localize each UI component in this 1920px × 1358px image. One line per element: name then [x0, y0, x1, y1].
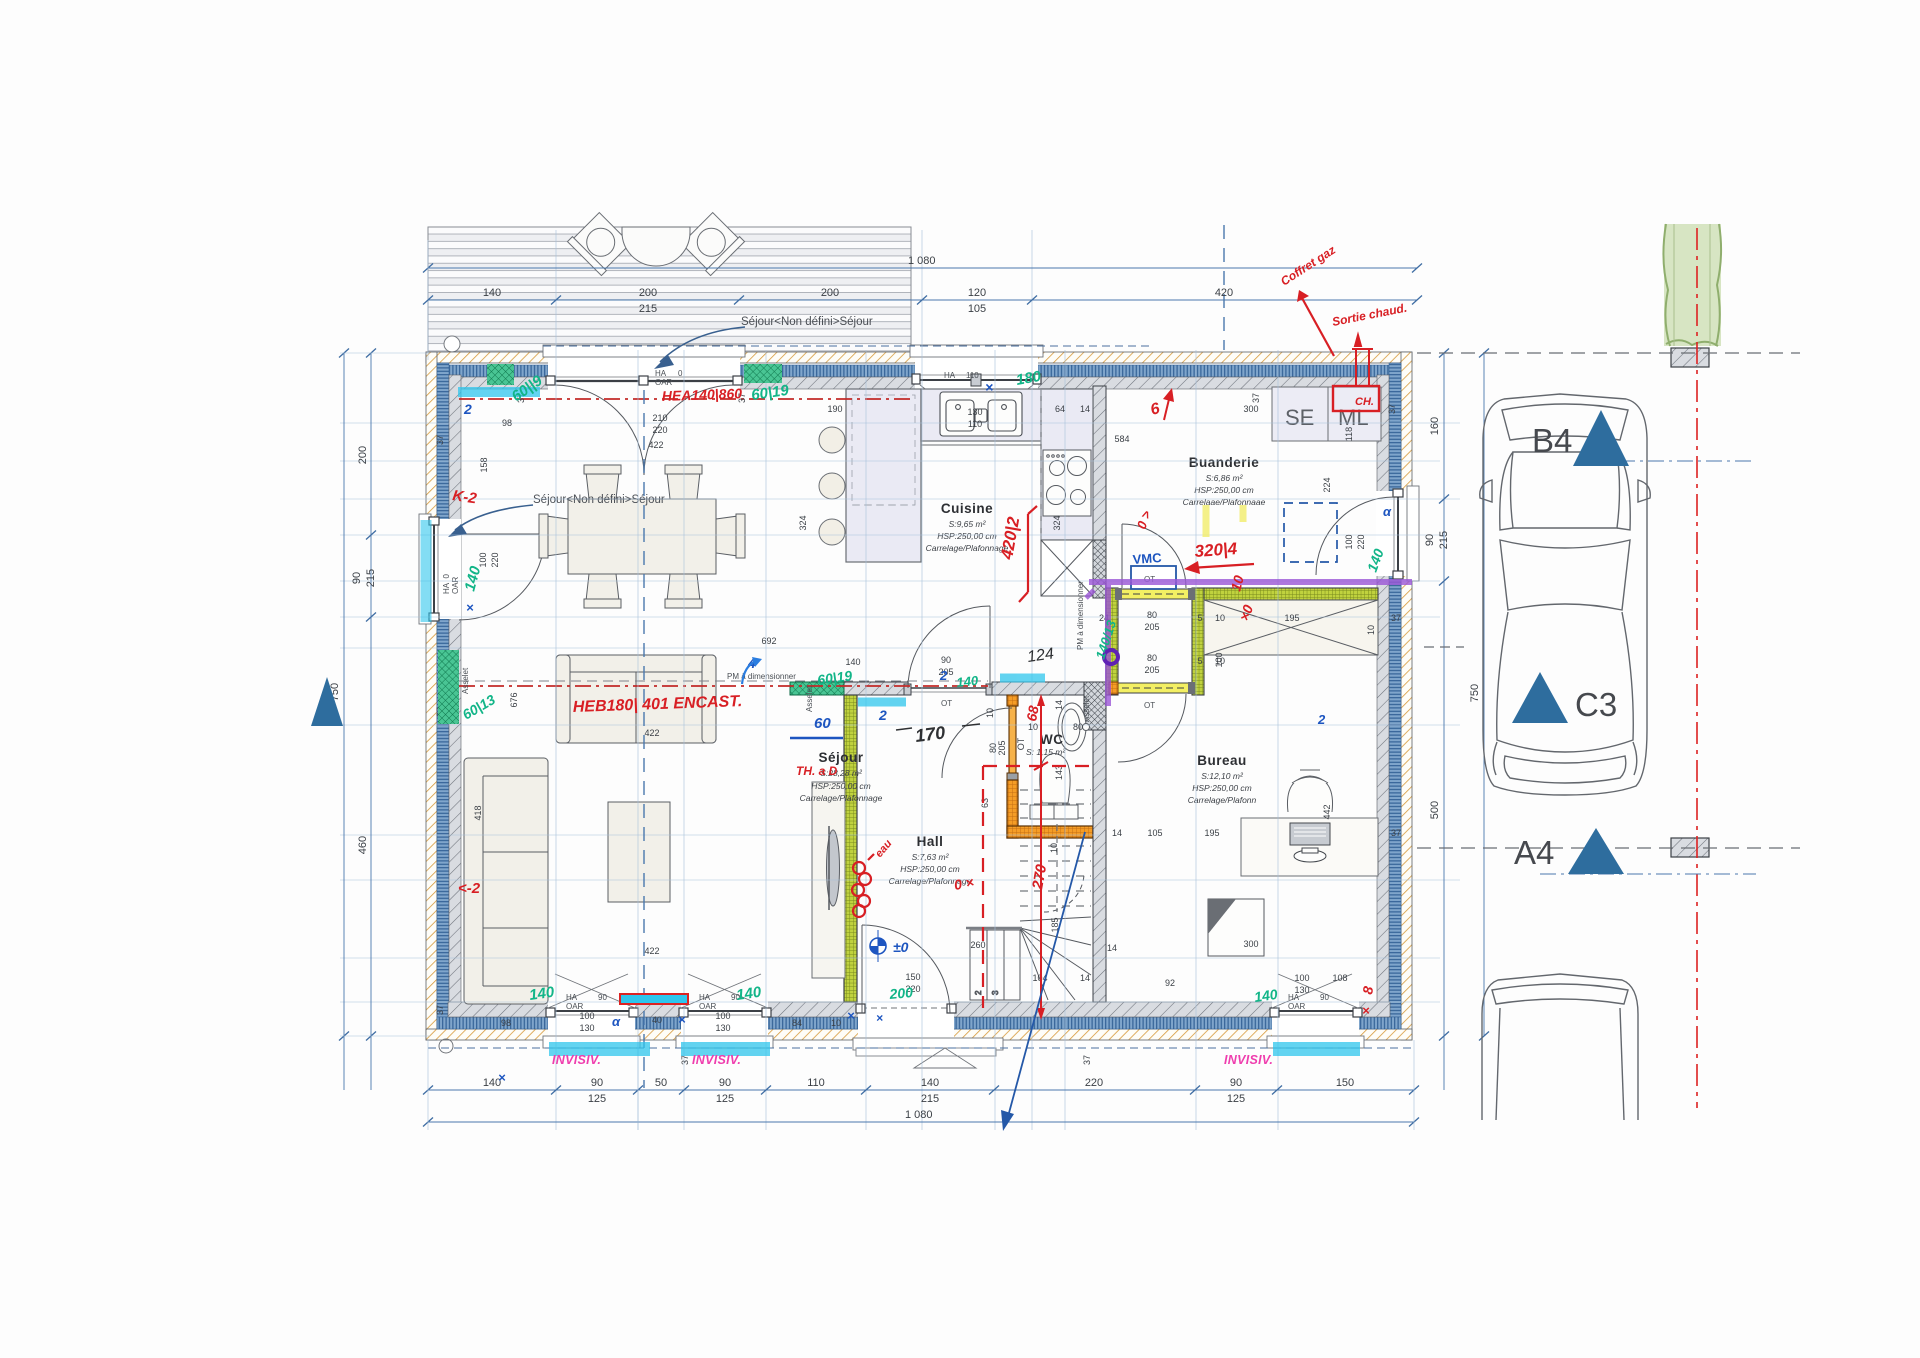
- svg-text:HSP:250,00 cm: HSP:250,00 cm: [1192, 783, 1252, 793]
- svg-text:140: 140: [921, 1077, 939, 1089]
- svg-text:2: 2: [939, 668, 948, 683]
- svg-text:584: 584: [1114, 434, 1129, 444]
- svg-text:INVISIV.: INVISIV.: [1224, 1053, 1273, 1067]
- svg-text:Buanderie: Buanderie: [1189, 455, 1260, 470]
- svg-text:HSP:250,00 cm: HSP:250,00 cm: [937, 531, 997, 541]
- svg-text:140: 140: [483, 287, 501, 299]
- svg-text:14: 14: [1080, 973, 1090, 983]
- svg-text:692: 692: [761, 636, 776, 646]
- svg-text:×: ×: [498, 1070, 506, 1085]
- svg-text:A4: A4: [1514, 834, 1554, 871]
- svg-text:Hall: Hall: [917, 834, 944, 849]
- svg-text:Bureau: Bureau: [1197, 753, 1247, 768]
- svg-text:14: 14: [1107, 943, 1117, 953]
- svg-text:100: 100: [579, 1011, 594, 1021]
- svg-text:90: 90: [591, 1077, 603, 1089]
- svg-text:170: 170: [914, 722, 946, 746]
- svg-text:195: 195: [1204, 828, 1219, 838]
- svg-text:Asselet: Asselet: [805, 685, 814, 712]
- svg-text:HA: HA: [699, 993, 711, 1002]
- svg-text:205: 205: [1144, 665, 1159, 675]
- svg-text:×: ×: [1362, 1003, 1370, 1018]
- svg-text:HSP:250,00 cm: HSP:250,00 cm: [900, 864, 960, 874]
- svg-text:215: 215: [639, 303, 657, 315]
- svg-text:324: 324: [798, 515, 808, 530]
- svg-text:HA: HA: [566, 993, 578, 1002]
- svg-text:200: 200: [821, 287, 839, 299]
- svg-text:140: 140: [845, 657, 860, 667]
- svg-text:220: 220: [490, 552, 500, 567]
- svg-text:C3: C3: [1575, 686, 1617, 723]
- svg-text:37: 37: [1391, 828, 1401, 838]
- svg-text:118: 118: [1344, 427, 1354, 441]
- svg-text:125: 125: [588, 1093, 606, 1105]
- svg-text:200: 200: [888, 984, 914, 1002]
- svg-text:2: 2: [1317, 712, 1326, 727]
- svg-text:158: 158: [479, 457, 489, 472]
- svg-text:84: 84: [792, 1018, 802, 1028]
- svg-text:676: 676: [509, 692, 519, 707]
- svg-text:90: 90: [719, 1077, 731, 1089]
- svg-text:300: 300: [1243, 404, 1258, 414]
- svg-text:130: 130: [579, 1023, 594, 1033]
- svg-text:×: ×: [876, 1011, 883, 1025]
- svg-text:S:12,10 m²: S:12,10 m²: [1201, 771, 1244, 781]
- svg-text:300: 300: [1243, 939, 1258, 949]
- svg-text:90: 90: [1230, 1077, 1242, 1089]
- svg-text:0: 0: [678, 369, 683, 378]
- svg-text:OT: OT: [941, 699, 952, 708]
- svg-text:PM à dimensionner: PM à dimensionner: [727, 672, 796, 681]
- svg-text:HA: HA: [944, 371, 956, 380]
- svg-text:460: 460: [357, 836, 369, 854]
- svg-text:37: 37: [1391, 613, 1401, 623]
- svg-text:B4: B4: [1532, 422, 1572, 459]
- svg-text:α: α: [612, 1014, 621, 1029]
- svg-text:2: 2: [974, 990, 983, 995]
- svg-text:5: 5: [1197, 613, 1202, 623]
- svg-text:ML: ML: [1338, 405, 1369, 430]
- svg-text:130: 130: [715, 1023, 730, 1033]
- svg-text:100: 100: [715, 1011, 730, 1021]
- svg-text:422: 422: [644, 728, 659, 738]
- svg-text:205: 205: [1144, 622, 1159, 632]
- svg-text:205: 205: [997, 740, 1007, 755]
- svg-text:37: 37: [680, 1055, 690, 1065]
- svg-text:S:9,65 m²: S:9,65 m²: [949, 519, 987, 529]
- svg-text:105: 105: [1147, 828, 1162, 838]
- svg-text:<-2: <-2: [458, 880, 481, 897]
- svg-text:90: 90: [1424, 534, 1436, 546]
- svg-text:80: 80: [1147, 653, 1157, 663]
- svg-text:90: 90: [941, 655, 951, 665]
- svg-text:442: 442: [1322, 804, 1332, 819]
- svg-text:64: 64: [1055, 404, 1065, 414]
- svg-text:90: 90: [351, 572, 363, 584]
- svg-text:100: 100: [478, 552, 488, 567]
- svg-text:Séjour<Non défini>Séjour: Séjour<Non défini>Séjour: [533, 494, 665, 506]
- svg-text:224: 224: [1322, 477, 1332, 492]
- svg-text:110: 110: [966, 371, 979, 380]
- svg-text:OT: OT: [1016, 737, 1026, 750]
- svg-text:OAR: OAR: [1288, 1002, 1306, 1011]
- svg-text:100: 100: [1214, 652, 1224, 667]
- svg-text:SE: SE: [1285, 405, 1314, 430]
- svg-text:Séjour: Séjour: [818, 750, 863, 765]
- svg-text:INVISIV.: INVISIV.: [552, 1053, 601, 1067]
- svg-text:125: 125: [1227, 1093, 1245, 1105]
- svg-text:OT: OT: [1144, 701, 1155, 710]
- svg-text:Carrelaae/Plafonnaae: Carrelaae/Plafonnaae: [1183, 497, 1266, 507]
- svg-text:190: 190: [827, 404, 842, 414]
- svg-text:2: 2: [878, 707, 887, 723]
- svg-text:80: 80: [1073, 722, 1083, 732]
- svg-text:98: 98: [502, 418, 512, 428]
- svg-text:S:7,63 m²: S:7,63 m²: [912, 852, 950, 862]
- svg-text:110: 110: [807, 1077, 825, 1089]
- svg-text:10: 10: [985, 708, 995, 718]
- svg-text:3: 3: [991, 990, 1000, 995]
- svg-text:100: 100: [1344, 534, 1354, 549]
- svg-text:14: 14: [1054, 700, 1064, 710]
- svg-text:14: 14: [1080, 404, 1090, 414]
- svg-text:220: 220: [652, 425, 667, 435]
- svg-text:140: 140: [1253, 986, 1279, 1005]
- svg-text:210: 210: [652, 413, 667, 423]
- svg-text:INVISIV.: INVISIV.: [692, 1053, 741, 1067]
- svg-text:220: 220: [1085, 1077, 1103, 1089]
- svg-text:37: 37: [1387, 404, 1397, 414]
- svg-text:750: 750: [1469, 684, 1481, 702]
- svg-text:HSP:250,00 cm: HSP:250,00 cm: [1194, 485, 1254, 495]
- svg-text:Asselet: Asselet: [461, 667, 470, 694]
- svg-text:OAR: OAR: [699, 1002, 717, 1011]
- svg-text:10: 10: [1049, 843, 1059, 853]
- svg-text:K-2: K-2: [451, 487, 478, 507]
- svg-text:37: 37: [435, 1005, 445, 1015]
- svg-text:TH. a D: TH. a D: [796, 764, 838, 778]
- svg-text:105: 105: [968, 303, 986, 315]
- svg-text:420: 420: [1215, 287, 1233, 299]
- svg-text:63: 63: [980, 798, 990, 808]
- svg-text:10: 10: [831, 1018, 841, 1028]
- svg-text:14: 14: [1112, 828, 1122, 838]
- svg-text:220: 220: [1356, 534, 1366, 549]
- svg-text:37: 37: [1082, 1055, 1092, 1065]
- svg-text:Carrelage/Plafonnage: Carrelage/Plafonnage: [800, 793, 883, 803]
- svg-text:422: 422: [648, 440, 663, 450]
- svg-text:PM à dimensionner: PM à dimensionner: [1076, 581, 1085, 650]
- svg-text:37: 37: [435, 435, 445, 445]
- svg-text:100: 100: [1294, 973, 1309, 983]
- svg-text:108: 108: [1332, 973, 1347, 983]
- svg-text:500: 500: [1429, 801, 1441, 819]
- svg-text:×: ×: [847, 1008, 855, 1023]
- svg-text:1 080: 1 080: [908, 255, 936, 267]
- svg-text:80: 80: [1147, 610, 1157, 620]
- svg-text:150: 150: [905, 972, 920, 982]
- svg-text:68: 68: [1023, 704, 1041, 722]
- svg-text:422: 422: [644, 946, 659, 956]
- svg-text:0 ×: 0 ×: [953, 874, 975, 893]
- svg-text:WC: WC: [1040, 732, 1064, 747]
- svg-text:Cuisine: Cuisine: [941, 501, 993, 516]
- svg-text:Carrelage/Plafonnage: Carrelage/Plafonnage: [926, 543, 1009, 553]
- svg-text:200: 200: [357, 446, 369, 464]
- svg-text:150: 150: [1336, 1077, 1354, 1089]
- svg-text:200: 200: [639, 287, 657, 299]
- svg-text:418: 418: [473, 805, 483, 820]
- svg-text:HA 0: HA 0: [442, 573, 451, 594]
- svg-text:×: ×: [678, 1012, 686, 1027]
- svg-text:50: 50: [655, 1077, 667, 1089]
- svg-text:90: 90: [598, 993, 607, 1002]
- svg-text:324: 324: [1052, 515, 1062, 530]
- svg-text:215: 215: [921, 1093, 939, 1105]
- svg-text:Carrelage/Plafonn: Carrelage/Plafonn: [1188, 795, 1257, 805]
- svg-text:140: 140: [528, 984, 556, 1004]
- svg-text:98: 98: [501, 1018, 511, 1028]
- svg-text:×: ×: [985, 379, 993, 395]
- svg-text:215: 215: [1438, 531, 1450, 549]
- svg-text:OAR: OAR: [566, 1002, 584, 1011]
- svg-text:Séjour<Non défini>Séjour: Séjour<Non défini>Séjour: [741, 316, 873, 328]
- svg-text:140: 140: [956, 673, 980, 690]
- svg-text:160: 160: [1429, 417, 1441, 435]
- svg-text:1 080: 1 080: [905, 1109, 933, 1121]
- svg-text:10: 10: [1215, 613, 1225, 623]
- svg-text:OAR: OAR: [451, 576, 460, 594]
- svg-text:×: ×: [466, 600, 474, 615]
- svg-text:120: 120: [968, 287, 986, 299]
- svg-text:130: 130: [1294, 985, 1309, 995]
- svg-text:HSP:250,00 cm: HSP:250,00 cm: [811, 781, 871, 791]
- svg-text:α: α: [1383, 504, 1392, 519]
- svg-text:37: 37: [1251, 393, 1261, 403]
- svg-text:195: 195: [1284, 613, 1299, 623]
- svg-text:215: 215: [365, 569, 377, 587]
- svg-text:110: 110: [968, 419, 982, 429]
- svg-text:130: 130: [967, 407, 982, 417]
- svg-text:140: 140: [735, 984, 763, 1004]
- svg-text:VMC: VMC: [1132, 550, 1162, 567]
- svg-text:320|4: 320|4: [1194, 539, 1238, 561]
- svg-text:2: 2: [463, 401, 472, 417]
- svg-text:125: 125: [716, 1093, 734, 1105]
- svg-text:92: 92: [1165, 978, 1175, 988]
- svg-text:10: 10: [1366, 625, 1376, 635]
- svg-text:260: 260: [970, 940, 985, 950]
- svg-text:OAR: OAR: [655, 378, 673, 387]
- svg-text:S:6,86 m²: S:6,86 m²: [1206, 473, 1244, 483]
- svg-text:60: 60: [814, 715, 831, 732]
- svg-text:HEA140|860: HEA140|860: [662, 385, 743, 404]
- svg-text:143: 143: [1054, 765, 1064, 780]
- svg-text:±0: ±0: [893, 939, 909, 955]
- svg-text:5: 5: [1197, 656, 1202, 666]
- svg-text:90: 90: [1320, 993, 1329, 1002]
- svg-text:10: 10: [1028, 722, 1038, 732]
- svg-text:CH.: CH.: [1355, 396, 1374, 408]
- svg-text:40: 40: [652, 1015, 662, 1025]
- svg-text:HA: HA: [655, 369, 667, 378]
